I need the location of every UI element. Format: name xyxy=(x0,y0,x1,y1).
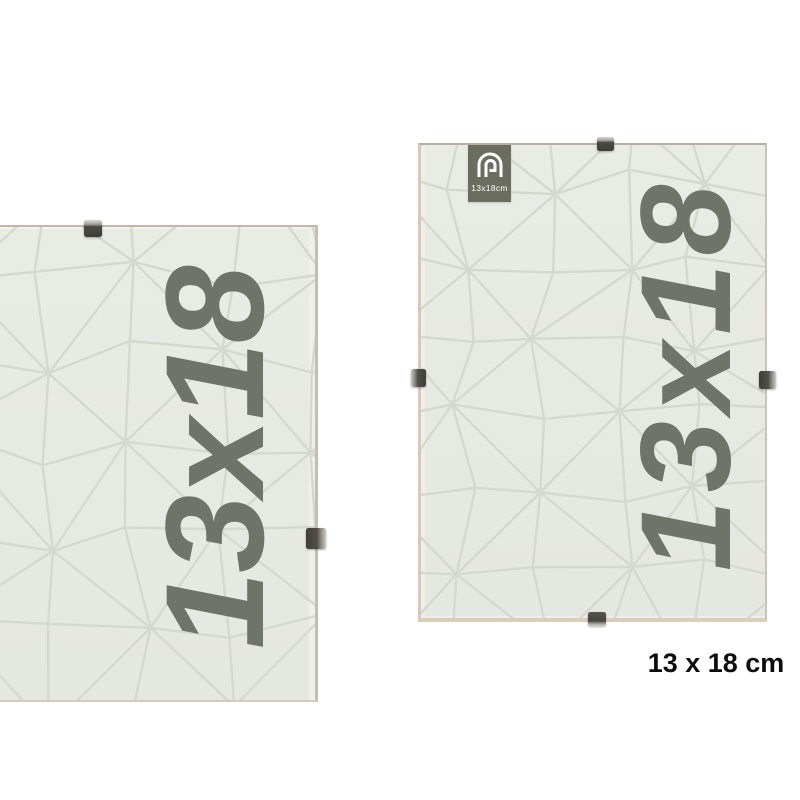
brand-arch-icon xyxy=(475,151,505,179)
label-size-text: 13x18cm xyxy=(471,183,508,193)
frame-clip-bottom xyxy=(588,612,606,626)
frame-clip-right xyxy=(759,371,776,389)
photo-frame-full: 13x18 13x18cm xyxy=(418,143,767,622)
photo-frame-closeup: 13x18 xyxy=(0,225,318,702)
frame-clip-top xyxy=(84,220,102,237)
frame-glass: 13x18 13x18cm xyxy=(418,143,767,622)
size-overlay-text: 13x18 xyxy=(623,177,751,571)
frame-clip-right xyxy=(306,528,326,549)
brand-label: 13x18cm xyxy=(468,145,511,202)
frame-glass: 13x18 xyxy=(0,225,318,702)
frame-clip-left xyxy=(411,369,426,387)
size-caption: 13 x 18 cm xyxy=(642,648,790,679)
frame-clip-top xyxy=(597,137,614,151)
size-overlay-text: 13x18 xyxy=(145,267,285,649)
